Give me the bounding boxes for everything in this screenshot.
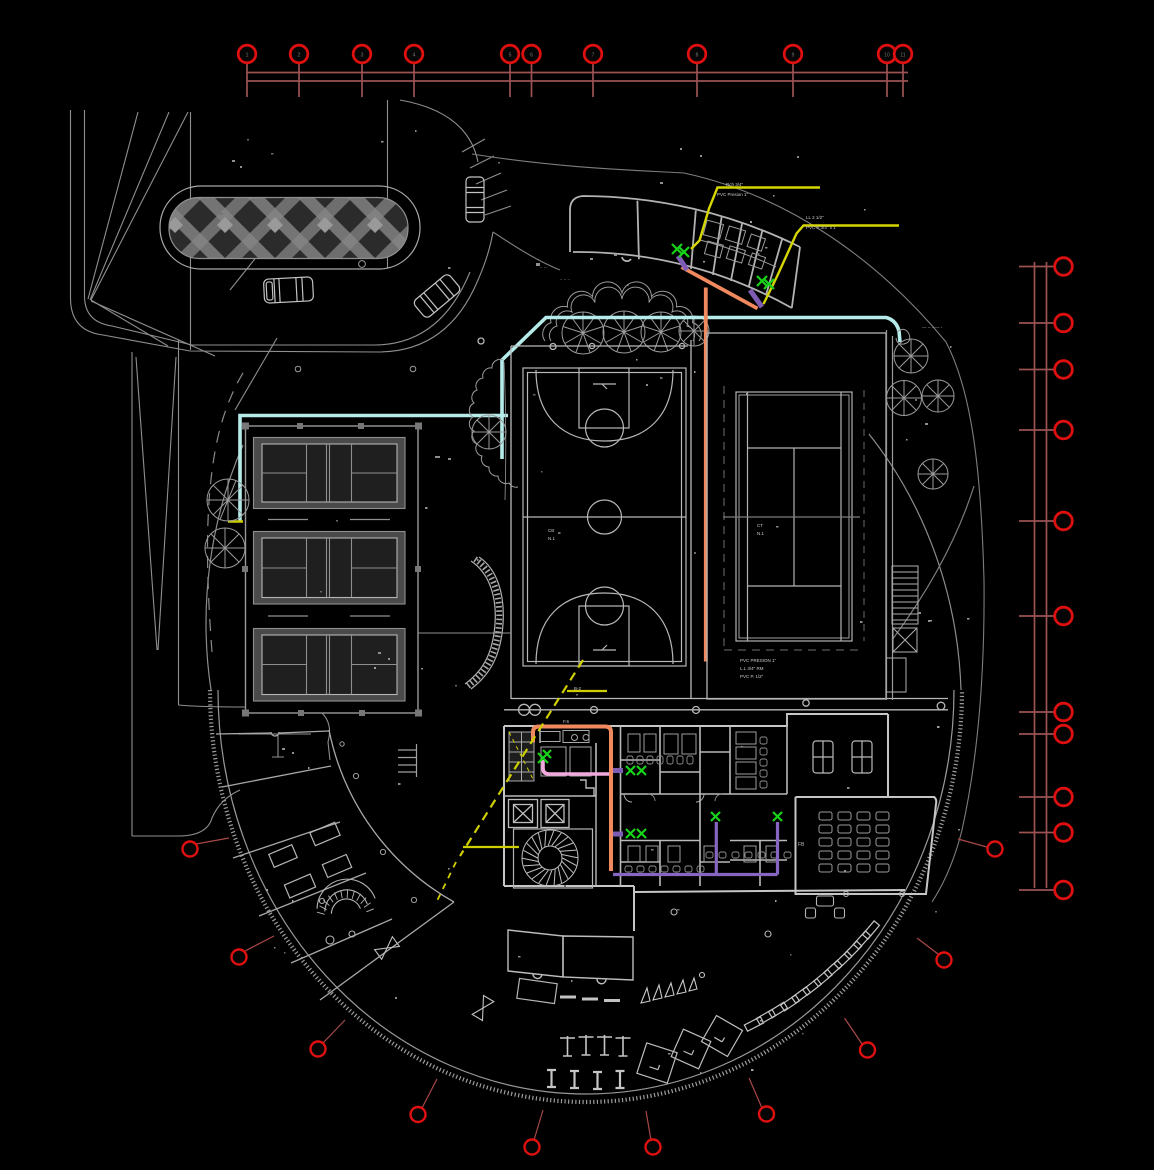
svg-text:FB: FB xyxy=(798,842,805,848)
svg-text:PVC P 3/4" x 1: PVC P 3/4" x 1 xyxy=(806,225,836,230)
svg-text:10: 10 xyxy=(884,53,890,59)
svg-text:8: 8 xyxy=(696,53,699,59)
svg-text:LL 2 1/2": LL 2 1/2" xyxy=(806,215,824,220)
svg-text:7: 7 xyxy=(592,53,595,59)
svg-text:PVC Presion 1": PVC Presion 1" xyxy=(717,192,749,197)
svg-text:.. ...: .. ... xyxy=(540,264,548,269)
svg-text:3: 3 xyxy=(361,53,364,59)
svg-text:5: 5 xyxy=(509,53,512,59)
svg-text:L.L 3/4" RM: L.L 3/4" RM xyxy=(740,666,764,671)
svg-text:N.1: N.1 xyxy=(757,531,765,536)
svg-text:11: 11 xyxy=(900,53,905,59)
svg-text:6: 6 xyxy=(530,53,533,59)
svg-text:F.6: F.6 xyxy=(563,719,570,724)
svg-text:B-2: B-2 xyxy=(574,686,582,691)
svg-text:CT: CT xyxy=(757,523,763,528)
svg-text:N.1: N.1 xyxy=(548,536,556,541)
svg-text:2: 2 xyxy=(298,53,301,59)
svg-text:9: 9 xyxy=(792,53,795,59)
svg-text:PVC P. 1/2": PVC P. 1/2" xyxy=(740,674,764,679)
svg-text:CB: CB xyxy=(548,528,554,533)
svg-text:1: 1 xyxy=(246,53,249,59)
svg-text:PVC PRESION 1": PVC PRESION 1" xyxy=(740,658,777,663)
svg-text:.. .. ..: .. .. .. xyxy=(560,276,570,281)
svg-text:--- -- ----- -: --- -- ----- - xyxy=(922,325,943,330)
svg-text:4: 4 xyxy=(413,53,416,59)
svg-text:Rch 3/4": Rch 3/4" xyxy=(726,182,744,187)
